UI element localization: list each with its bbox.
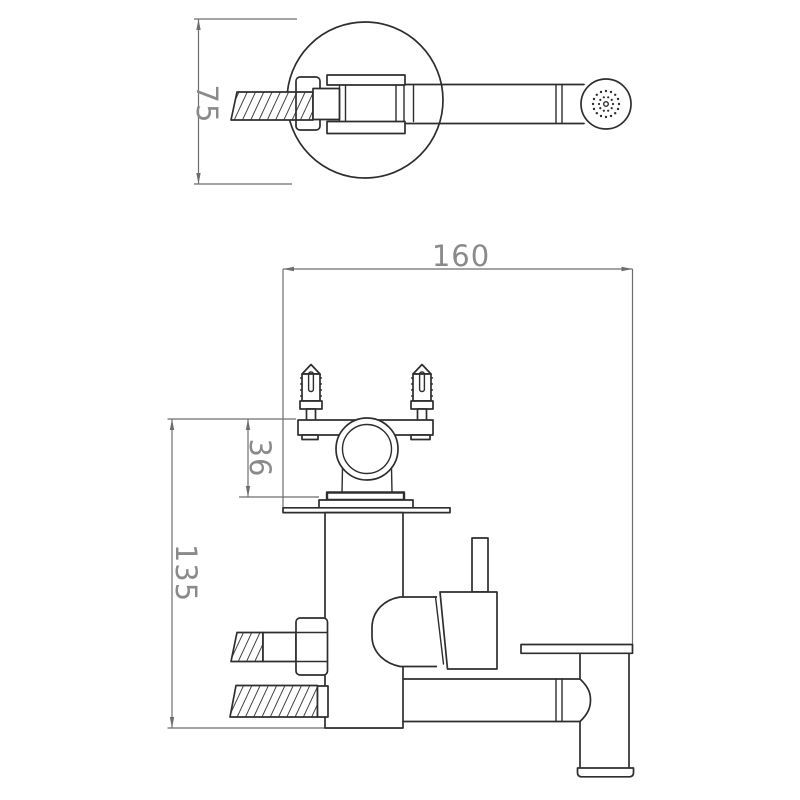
inlet-hose-upper bbox=[231, 618, 328, 675]
sprayer-detail-view: 75 bbox=[190, 19, 631, 184]
technical-drawing-page: 75 bbox=[0, 0, 800, 800]
flex-hose-detail bbox=[231, 92, 313, 120]
hose-connector bbox=[313, 89, 340, 120]
wall-anchor-left bbox=[300, 365, 322, 421]
dim-label-135: 135 bbox=[169, 544, 203, 602]
spout-top-plate bbox=[521, 645, 633, 654]
dim-label-75: 75 bbox=[190, 85, 224, 124]
drawing-svg: 75 bbox=[0, 0, 800, 800]
handle-lever bbox=[440, 592, 497, 669]
bar-foot-right bbox=[411, 435, 430, 440]
handle-stem bbox=[472, 538, 488, 592]
cartridge-dome bbox=[372, 597, 437, 667]
dim-label-160: 160 bbox=[432, 239, 490, 273]
valve-escutcheon-outer bbox=[336, 418, 398, 480]
outlet-pipe bbox=[403, 679, 591, 722]
inlet-hose-lower bbox=[230, 686, 328, 718]
dim-label-36: 36 bbox=[243, 439, 277, 478]
escutcheon-flange bbox=[327, 493, 404, 501]
bar-foot-left bbox=[302, 435, 318, 440]
spout-bottom-cap bbox=[578, 768, 634, 777]
sprayer-head bbox=[581, 79, 631, 129]
base-plate-mid bbox=[319, 500, 413, 508]
faucet-front-view: 160 36 135 bbox=[168, 239, 634, 777]
sprayer-handle-tube bbox=[405, 85, 584, 124]
wall-anchor-right bbox=[411, 365, 433, 421]
